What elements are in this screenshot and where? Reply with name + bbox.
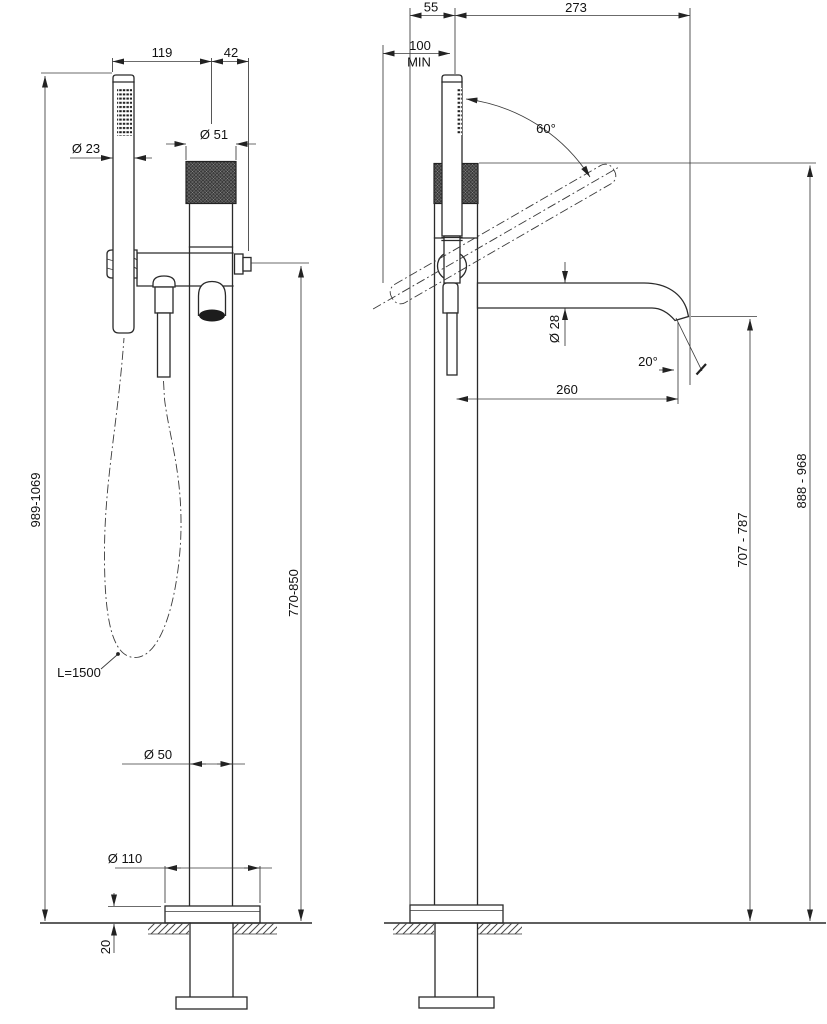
side-view: 55 273 100 MIN 60° Ø 28 260 <box>368 0 826 1008</box>
drawing-canvas: 989-1069 119 42 Ø 23 Ø 51 <box>0 0 827 1024</box>
dim-column-diameter: Ø 50 <box>122 747 245 764</box>
front-spray-face <box>117 88 132 136</box>
front-under-floor-flange <box>176 997 247 1009</box>
base-diameter-label: Ø 110 <box>108 851 142 866</box>
front-floor-hatch-left <box>148 924 189 934</box>
dim-outlet-angle: 20° <box>638 318 706 375</box>
spout-diameter-label: Ø 28 <box>547 315 562 343</box>
side-floor-hatch-left <box>393 924 434 934</box>
front-view: 989-1069 119 42 Ø 23 Ø 51 <box>28 45 312 1009</box>
side-body-height-label: 888 - 968 <box>794 454 809 509</box>
front-hose <box>104 338 181 658</box>
side-floor-hatch-right <box>478 924 522 934</box>
front-offset-label: 55 <box>424 0 438 15</box>
dim-body-height-side: 888 - 968 <box>479 163 816 921</box>
front-base <box>40 906 312 1009</box>
dim-min-clearance: 100 MIN <box>383 38 450 283</box>
front-knurled-knob <box>186 162 236 204</box>
dim-outlet-height-side: 707 - 787 <box>691 317 757 922</box>
dim-overall-height: 989-1069 <box>28 73 112 921</box>
side-under-floor-flange <box>419 997 494 1008</box>
front-floor-hatch-right <box>233 924 277 934</box>
dim-knob-diameter: Ø 51 <box>166 127 256 160</box>
overall-reach-label: 273 <box>565 0 587 15</box>
hose-length-label: L=1500 <box>57 665 101 680</box>
front-spout <box>199 282 226 322</box>
dim-handshower-diameter: Ø 23 <box>70 141 152 158</box>
overall-height-label: 989-1069 <box>28 473 43 528</box>
column-diameter-label: Ø 50 <box>144 747 172 762</box>
outlet-height-label: 770-850 <box>286 569 301 617</box>
front-control-lever <box>153 276 175 377</box>
side-base <box>384 905 826 1008</box>
dim-outlet-height: 770-850 <box>251 263 309 921</box>
side-spray-face <box>457 88 462 135</box>
front-column <box>186 162 236 907</box>
outlet-angle-label: 20° <box>638 354 658 369</box>
base-height-label: 20 <box>98 940 113 954</box>
front-hand-shower <box>113 75 134 333</box>
hose-length-callout: L=1500 <box>57 652 120 680</box>
spout-reach-label: 260 <box>556 382 578 397</box>
min-clearance-label: 100 <box>409 38 431 53</box>
swivel-angle-label: 60° <box>536 121 556 136</box>
dim-swivel-angle: 60° <box>466 99 590 177</box>
handshower-diameter-label: Ø 23 <box>72 141 100 156</box>
front-spout-outlet <box>199 310 225 322</box>
knob-diameter-label: Ø 51 <box>200 127 228 142</box>
technical-drawing-sheet: 989-1069 119 42 Ø 23 Ø 51 <box>0 0 827 1024</box>
side-spout <box>478 283 689 321</box>
handshower-offset-label: 119 <box>152 45 173 60</box>
side-outlet-height-label: 707 - 787 <box>735 513 750 568</box>
side-control-lever <box>443 283 458 375</box>
port-offset-label: 42 <box>224 45 238 60</box>
front-dimensions: 989-1069 119 42 Ø 23 Ø 51 <box>28 45 309 954</box>
side-hand-shower <box>438 75 467 283</box>
min-clearance-min-label: MIN <box>407 55 431 70</box>
front-hose-port <box>235 254 244 274</box>
